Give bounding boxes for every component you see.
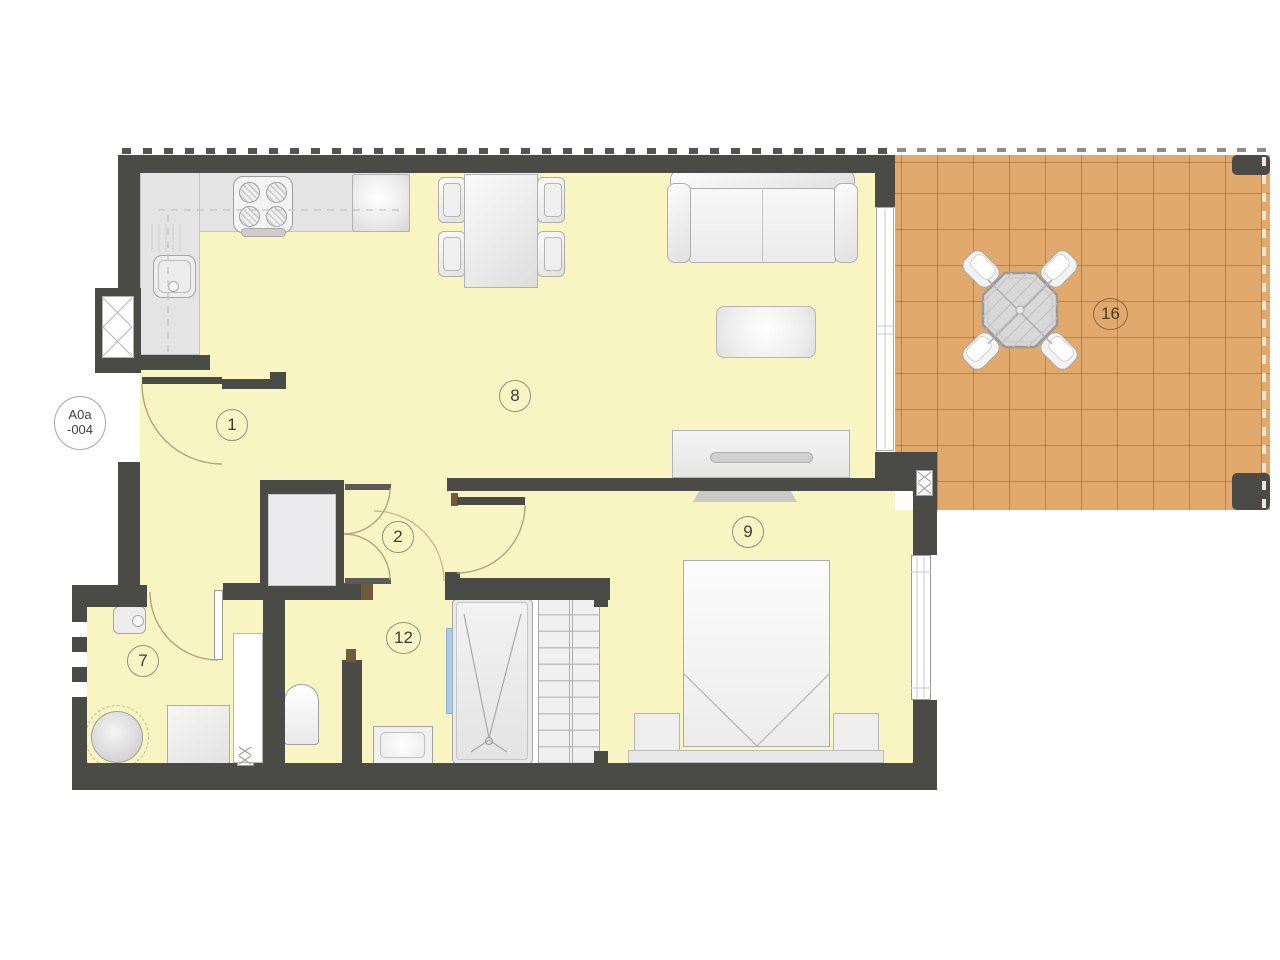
stove-handle bbox=[241, 228, 286, 237]
kitchen-sink bbox=[153, 255, 196, 298]
bedroom-window bbox=[911, 555, 931, 700]
wall-bottom bbox=[72, 763, 937, 790]
wall-door-return-block bbox=[270, 372, 286, 389]
burner-icon bbox=[266, 182, 287, 203]
wall-bedroom-right-lower bbox=[913, 700, 937, 763]
sideboard-handle bbox=[710, 452, 813, 463]
vent-box bbox=[916, 470, 933, 496]
room-label-12: 12 bbox=[386, 622, 421, 654]
sink-drain-icon bbox=[168, 281, 179, 292]
utility-door-leaf bbox=[214, 590, 223, 660]
stove bbox=[233, 176, 293, 233]
terrace-floor bbox=[895, 155, 1270, 510]
utility-sink bbox=[113, 606, 146, 634]
wall-utility-top bbox=[72, 585, 147, 607]
nightstand bbox=[833, 713, 879, 753]
toilet-partition bbox=[342, 660, 362, 763]
room-label-7: 7 bbox=[127, 645, 159, 677]
wall-left-mid bbox=[118, 462, 140, 587]
laundry-tub bbox=[91, 711, 143, 763]
bedroom-door-leaf bbox=[457, 497, 525, 505]
room-label-2: 2 bbox=[382, 521, 414, 553]
burner-icon bbox=[239, 182, 260, 203]
unit-number-line2: -004 bbox=[67, 423, 93, 438]
wall-above-shower bbox=[445, 578, 610, 600]
sliding-door bbox=[876, 207, 894, 451]
fridge bbox=[352, 174, 410, 232]
wall-top bbox=[118, 155, 895, 173]
shaft-window bbox=[102, 296, 134, 358]
terrace-pillar bbox=[1232, 155, 1270, 175]
burner-icon bbox=[239, 206, 260, 227]
wall-left-lower bbox=[72, 712, 87, 767]
sofa-seat-divider bbox=[762, 190, 763, 261]
bed bbox=[683, 560, 830, 747]
dining-chair bbox=[537, 231, 565, 277]
terrace-pillar bbox=[1232, 473, 1270, 510]
washbasin bbox=[373, 726, 433, 764]
closet-interior bbox=[268, 494, 336, 586]
unit-number-line1: A0a bbox=[68, 408, 91, 423]
dining-chair bbox=[438, 177, 466, 223]
tap-icon bbox=[132, 615, 144, 627]
shower-glass-screen bbox=[446, 628, 453, 714]
coffee-table bbox=[716, 306, 816, 358]
door-frame-tick bbox=[361, 583, 373, 600]
wall-entry-stub bbox=[140, 355, 210, 370]
room-label-16: 16 bbox=[1093, 298, 1128, 330]
louver-vent bbox=[72, 607, 87, 712]
wardrobe-frame-nub bbox=[594, 751, 608, 766]
sofa-armrest bbox=[667, 183, 691, 263]
wall-toilet-left bbox=[263, 600, 285, 763]
partition-frame-pin bbox=[346, 649, 356, 662]
sofa-armrest bbox=[834, 183, 858, 263]
floor-plan: A0a -004 1 2 7 8 9 12 16 bbox=[0, 0, 1280, 960]
toilet bbox=[284, 684, 319, 745]
unit-number-badge: A0a -004 bbox=[54, 396, 106, 450]
room-label-1: 1 bbox=[216, 409, 248, 441]
room-label-9: 9 bbox=[732, 516, 764, 548]
shower-tray bbox=[452, 598, 533, 765]
dining-table bbox=[464, 174, 538, 288]
closet-door-leaf bbox=[345, 484, 391, 490]
wall-sliding-top-block bbox=[875, 155, 895, 207]
bed-headboard bbox=[628, 750, 884, 763]
nightstand bbox=[634, 713, 680, 753]
closet-door-leaf bbox=[345, 578, 391, 584]
dining-chair bbox=[537, 177, 565, 223]
duct-shaft bbox=[233, 633, 263, 763]
washing-machine bbox=[167, 705, 230, 767]
wardrobe-frame-nub bbox=[594, 592, 608, 607]
wall-bedroom-top bbox=[447, 478, 937, 491]
entry-door-leaf bbox=[142, 377, 222, 384]
room-label-8: 8 bbox=[499, 380, 531, 412]
burner-icon bbox=[266, 206, 287, 227]
wardrobe-divider bbox=[569, 599, 573, 765]
wardrobe bbox=[538, 598, 600, 766]
dining-chair bbox=[438, 231, 466, 277]
